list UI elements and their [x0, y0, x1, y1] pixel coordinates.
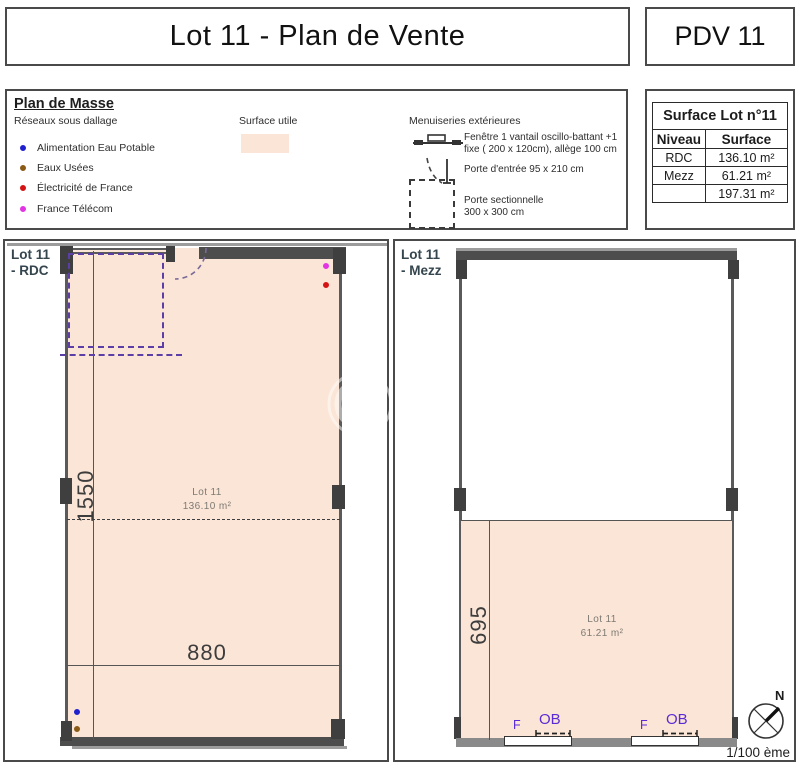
- north-compass-icon: [746, 697, 790, 743]
- sectional-door-symbol-icon: [409, 179, 455, 229]
- rdc-top-wall: [199, 247, 346, 259]
- sectional-door-zone: [68, 253, 164, 348]
- north-label: N: [775, 688, 784, 703]
- mezz-column-top-left: [456, 260, 467, 279]
- table-row-rdc: RDC 136.10 m²: [653, 149, 788, 167]
- sewage-point-icon: [74, 726, 80, 732]
- document-code: PDV 11: [674, 21, 765, 52]
- legend-item-eau-potable: Alimentation Eau Potable: [20, 142, 155, 154]
- porte-sectionnelle-desc-line2: 300 x 300 cm: [464, 207, 524, 219]
- legend-title: Plan de Masse: [14, 96, 114, 112]
- rdc-horizontal-dimension-line: [67, 665, 340, 666]
- mezz-column-top-right: [728, 260, 739, 279]
- mezz-room-label: Lot 11 61.21 m²: [547, 613, 657, 641]
- mezz-plan-panel: Lot 11 - Mezz 695 Lot 11 61.21 m² F OB: [393, 239, 796, 762]
- mezz-column-mid-right: [726, 488, 738, 511]
- window-symbol-icon: [411, 133, 465, 148]
- surface-table-title: Surface Lot n°11: [653, 103, 788, 130]
- rdc-horizontal-dimension: 880: [152, 640, 262, 666]
- fenetre-desc-line1: Fenêtre 1 vantail oscillo-battant +1: [464, 132, 617, 144]
- electricity-point-icon: [323, 282, 329, 288]
- window-ob-label-2: OB: [666, 711, 688, 728]
- mezz-plan-label: Lot 11 - Mezz: [401, 247, 442, 279]
- water-point-icon: [74, 709, 80, 715]
- porte-entree-desc: Porte d'entrée 95 x 210 cm: [464, 164, 584, 176]
- page-title: Lot 11 - Plan de Vente: [170, 20, 466, 53]
- mezz-column-mid-left: [454, 488, 466, 511]
- table-row-total: 197.31 m²: [653, 185, 788, 203]
- rdc-column-mid-left: [60, 478, 72, 504]
- electricity-network-icon: [20, 185, 26, 191]
- page-title-box: Lot 11 - Plan de Vente: [5, 7, 630, 66]
- rdc-column-top-right: [333, 248, 346, 274]
- telecom-network-icon: [20, 206, 26, 212]
- mezzanine-edge-dashed-line: [67, 519, 340, 520]
- window-opening-marks-2: [660, 728, 700, 738]
- rdc-plan-label: Lot 11 - RDC: [11, 247, 50, 279]
- networks-subtitle: Réseaux sous dallage: [14, 115, 117, 127]
- mezz-vertical-dimension: 695: [466, 605, 492, 645]
- watermark: [322, 366, 398, 442]
- mezz-top-wall: [456, 251, 737, 260]
- scale-label: 1/100 ème: [700, 745, 790, 760]
- window-opening-marks-1: [533, 728, 573, 738]
- telecom-point-icon: [323, 263, 329, 269]
- legend-item-edf: Électricité de France: [20, 182, 133, 194]
- table-row-mezz: Mezz 61.21 m²: [653, 167, 788, 185]
- rdc-plan-panel: Lot 11 - RDC 1550 Lot 11 1: [3, 239, 389, 762]
- fenetre-desc-line2: fixe ( 200 x 120cm), allège 100 cm: [464, 144, 617, 156]
- legend-item-telecom: France Télécom: [20, 203, 113, 215]
- rdc-front-opening-line: [67, 248, 167, 250]
- porte-sectionnelle-desc-line1: Porte sectionnelle: [464, 195, 544, 207]
- rdc-bottom-offset-line: [72, 746, 347, 749]
- rdc-column-mid-right: [332, 485, 345, 509]
- column-header-surface: Surface: [705, 130, 787, 149]
- sectional-door-zone-line: [60, 354, 182, 356]
- surface-table: Surface Lot n°11 Niveau Surface RDC 136.…: [652, 102, 788, 203]
- rdc-column-bottom-left: [61, 721, 72, 741]
- plan-de-vente-sheet: Lot 11 - Plan de Vente PDV 11 Plan de Ma…: [0, 0, 800, 768]
- legend-item-eaux-usees: Eaux Usées: [20, 162, 94, 174]
- entry-door-swing-arc: [170, 244, 212, 288]
- surface-utile-label: Surface utile: [239, 115, 297, 127]
- window-fixed-label-1: F: [513, 718, 521, 732]
- rdc-column-bottom-right: [331, 719, 345, 739]
- water-network-icon: [20, 145, 26, 151]
- rdc-bottom-wall: [60, 737, 344, 746]
- rdc-room-label: Lot 11 136.10 m²: [152, 486, 262, 514]
- column-header-niveau: Niveau: [653, 130, 706, 149]
- sewage-network-icon: [20, 165, 26, 171]
- surface-utile-swatch: [241, 134, 289, 153]
- surface-table-panel: Surface Lot n°11 Niveau Surface RDC 136.…: [645, 89, 795, 230]
- menuiseries-subtitle: Menuiseries extérieures: [409, 115, 520, 127]
- window-ob-label-1: OB: [539, 711, 561, 728]
- rdc-vertical-dimension: 1550: [73, 470, 99, 523]
- window-fixed-label-2: F: [640, 718, 648, 732]
- legend-panel: Plan de Masse Réseaux sous dallage Alime…: [5, 89, 628, 230]
- document-code-box: PDV 11: [645, 7, 795, 66]
